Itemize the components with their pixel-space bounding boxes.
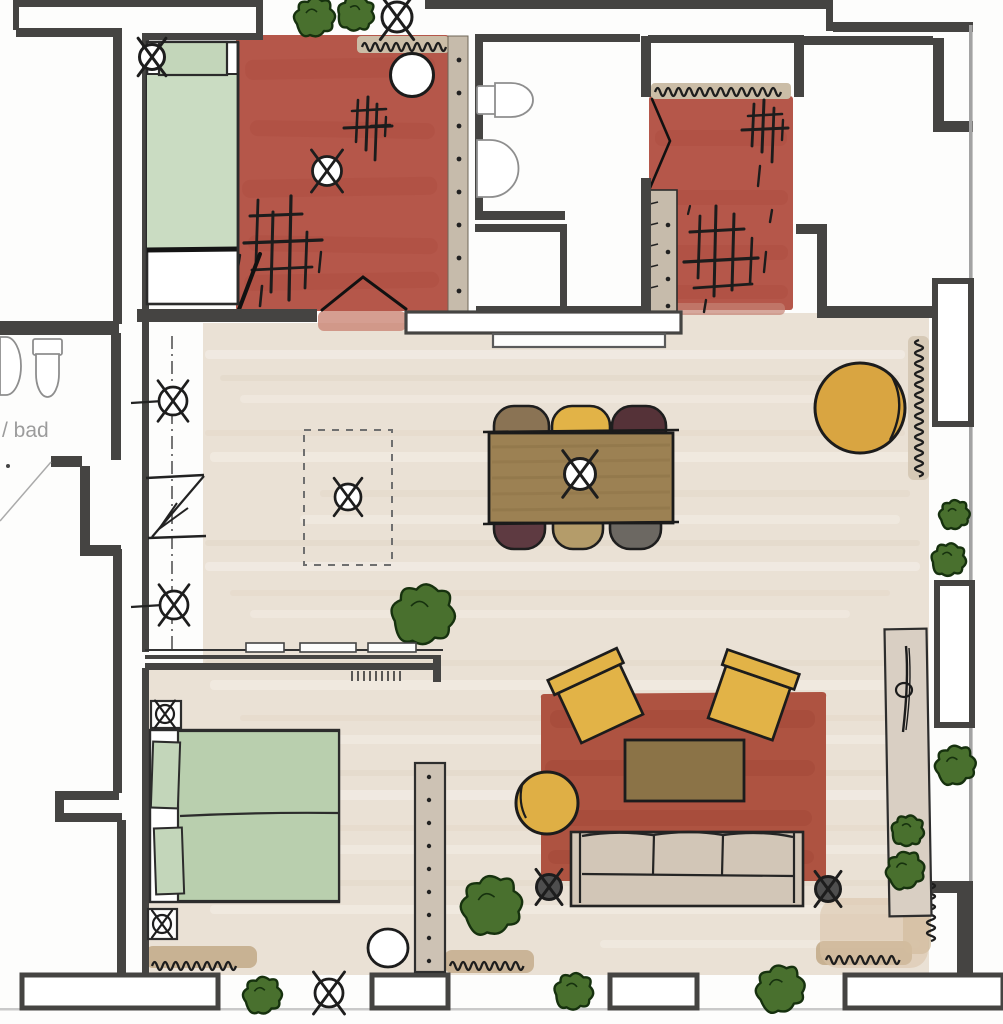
svg-text:/ bad: / bad [2, 419, 49, 442]
